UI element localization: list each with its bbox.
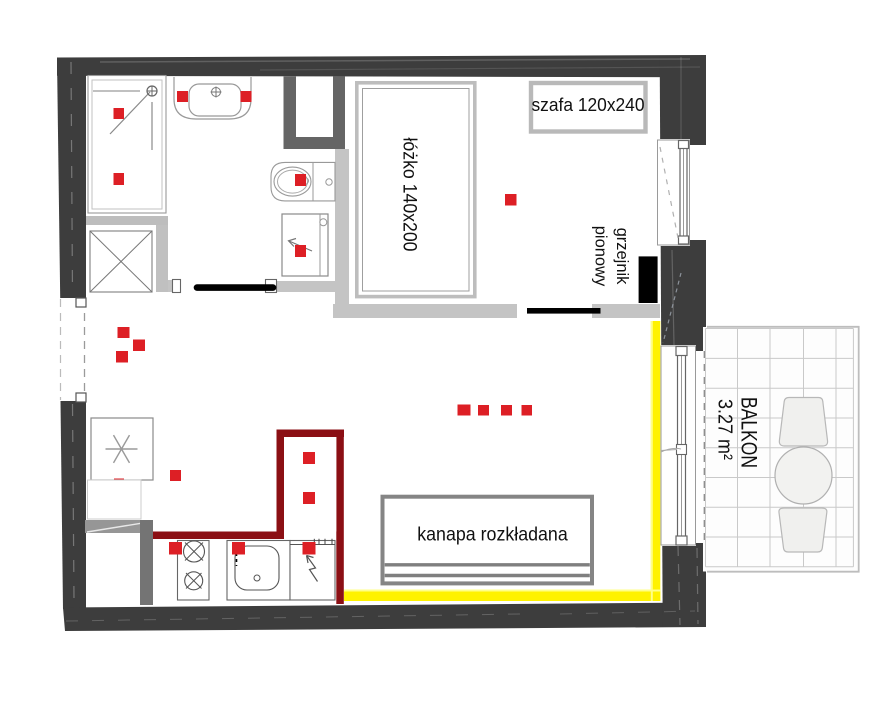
svg-text:szafa 120x240: szafa 120x240 xyxy=(532,94,645,115)
svg-text:3.27 m²: 3.27 m² xyxy=(714,399,737,460)
svg-text:łóżko 140x200: łóżko 140x200 xyxy=(399,138,421,252)
svg-text:kanapa rozkładana: kanapa rozkładana xyxy=(417,524,568,546)
svg-text:BALKON: BALKON xyxy=(737,397,762,468)
